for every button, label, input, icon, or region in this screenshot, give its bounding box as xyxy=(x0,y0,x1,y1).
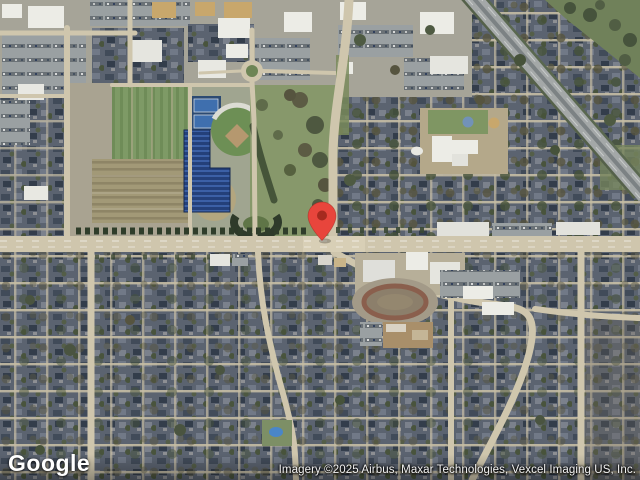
school-track-south xyxy=(352,278,438,348)
farm-fields xyxy=(67,83,190,236)
satellite-map[interactable] xyxy=(0,0,640,480)
map-viewport[interactable]: Google Imagery ©2025 Airbus, Maxar Techn… xyxy=(0,0,640,480)
google-logo[interactable]: Google xyxy=(8,450,90,477)
roundabout xyxy=(241,60,263,82)
attribution-text: Imagery ©2025 Airbus, Maxar Technologies… xyxy=(279,464,636,476)
community-pool xyxy=(262,420,292,446)
school-campus-ne xyxy=(411,108,508,174)
